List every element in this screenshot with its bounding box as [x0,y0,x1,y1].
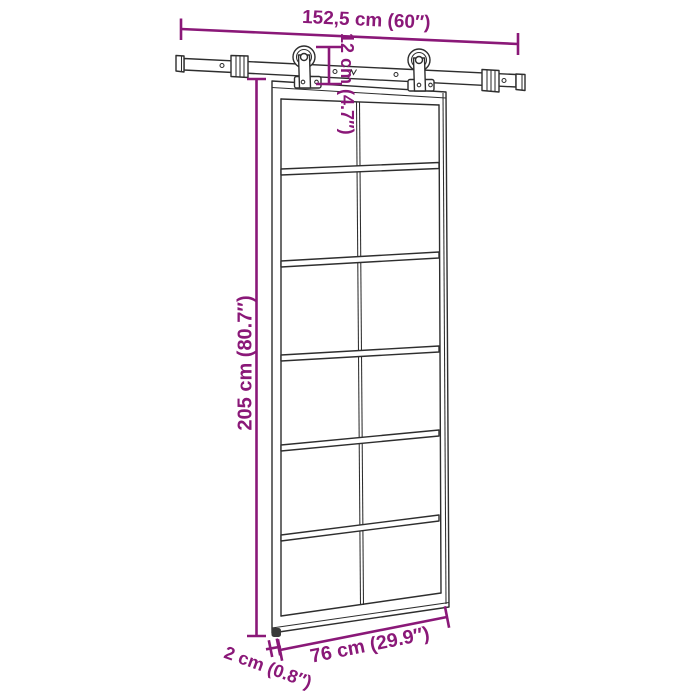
door [272,81,450,637]
rail-end-cap-right [516,74,525,91]
door-width-label: 76 cm (29.9″) [308,623,431,668]
rail-width-label: 152,5 cm (60″) [302,7,431,34]
barn-door-diagram: 152,5 cm (60″) 12 cm (4.7″) 205 cm (80.7… [0,0,700,700]
rail-end-cap-left [176,56,184,73]
floor-guide [272,628,282,637]
hardware-drop-label: 12 cm (4.7″) [337,33,357,135]
roller-right-hub [416,57,423,64]
door-height-label: 205 cm (80.7″) [235,295,257,430]
dimension-door-height: 205 cm (80.7″) [235,79,267,636]
rail-connector-left [231,56,248,78]
roller-left-hub [301,54,308,61]
rail-connector-right [482,70,499,93]
product-diagram: 152,5 cm (60″) 12 cm (4.7″) 205 cm (80.7… [0,0,700,700]
